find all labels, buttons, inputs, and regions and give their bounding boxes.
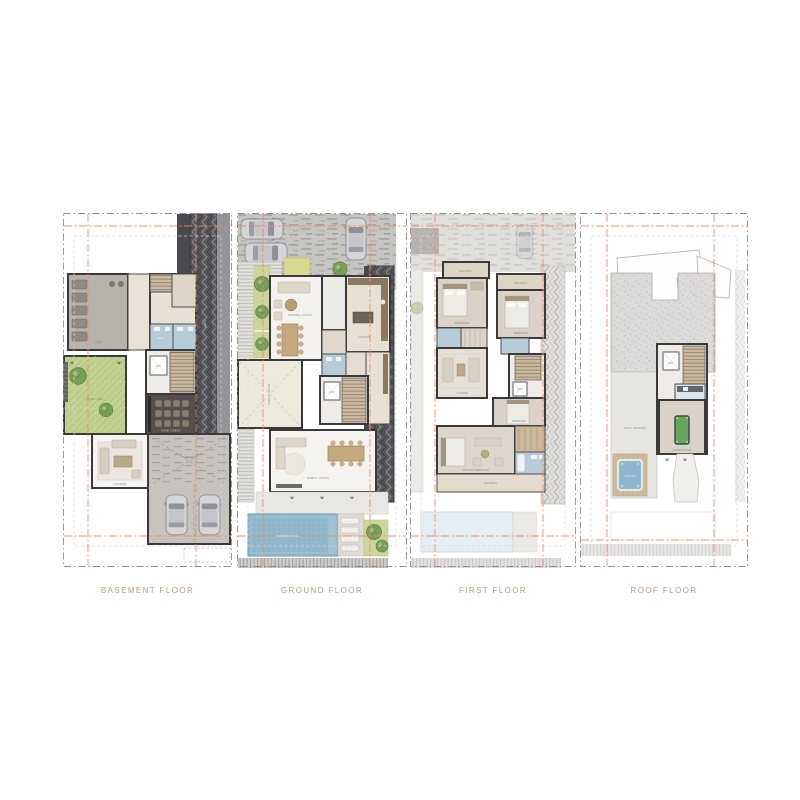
floor-panel-ground: FORMAL LIVING KITCHEN GUEST ROOM LIFT FA… <box>236 212 408 612</box>
ghost-outline <box>611 512 715 540</box>
first-floor-plan: BALCONY BALCONY BEDROOM BEDROOM LOUNGE L… <box>409 212 577 612</box>
lift-label: LIFT <box>668 362 674 365</box>
bedroom-2 <box>497 290 545 338</box>
car-icon <box>197 495 221 535</box>
balcony-label: BALCONY <box>460 270 473 273</box>
floor-panel-roof: LIFT GAMES ROOM ROOF TERRACE JACUZZI W W… <box>579 212 749 612</box>
floor-panel-first: BALCONY BALCONY BEDROOM BEDROOM LOUNGE L… <box>409 212 577 612</box>
car-icon <box>241 218 283 241</box>
master-bedroom-label: MASTER BEDROOM <box>463 469 489 472</box>
lift-label: LIFT <box>156 365 162 368</box>
games-room <box>659 400 705 454</box>
ramp-label: RAMP <box>203 320 206 328</box>
lift-label: LIFT <box>329 391 335 394</box>
kitchen <box>346 276 390 352</box>
balcony-label: BALCONY <box>485 482 498 485</box>
first-lift-core <box>509 354 545 398</box>
basement-gym <box>68 274 128 350</box>
car-icon <box>345 218 368 260</box>
basement-lounge <box>92 434 148 488</box>
floor-caption-ground: GROUND FLOOR <box>236 586 408 595</box>
cinema-label: HOME CINEMA <box>161 430 181 433</box>
formal-living-label: FORMAL LIVING <box>288 313 312 317</box>
parking-spot-outline <box>184 548 230 562</box>
ground-lift-core <box>320 376 368 424</box>
pool-deck <box>338 514 388 556</box>
formal-living <box>270 276 322 360</box>
bedroom-label: BEDROOM <box>514 332 528 335</box>
window-mark: W <box>665 458 669 462</box>
entrance-foyer <box>322 276 346 330</box>
bedroom-label: BEDROOM <box>512 420 526 423</box>
tree-icon <box>99 403 113 417</box>
bedroom-1 <box>437 278 487 328</box>
bath-label: BATH <box>158 337 165 340</box>
floor-caption-roof: ROOF FLOOR <box>579 586 749 595</box>
basement-corridor <box>128 274 150 350</box>
balcony-label: BALCONY <box>515 282 528 285</box>
lounge-label: LOUNGE <box>113 482 126 486</box>
bathroom-1 <box>437 328 461 348</box>
basement-cinema <box>146 394 196 434</box>
family-living-label: FAMILY LIVING <box>307 476 329 480</box>
floor-panel-basement: GYM BATH LIFT HOME CINEMA COURTYARD LOUN… <box>62 212 233 612</box>
basement-lift-core <box>146 350 196 394</box>
master-wardrobe <box>515 426 545 452</box>
master-bathroom <box>515 452 545 474</box>
walkin-closet-1 <box>461 328 487 348</box>
bedroom-label: BEDROOM <box>455 322 469 325</box>
tree-icon <box>70 368 87 385</box>
roof-floor-plan: LIFT GAMES ROOM ROOF TERRACE JACUZZI W W <box>579 212 749 612</box>
floor-caption-basement: BASEMENT FLOOR <box>62 586 233 595</box>
master-bedroom <box>437 426 515 474</box>
lift-label: LIFT <box>517 388 523 391</box>
games-room-label: GAMES ROOM <box>673 449 692 452</box>
gym-label: GYM <box>95 340 102 344</box>
car-icon <box>245 242 287 265</box>
basement-floor-plan: GYM BATH LIFT HOME CINEMA COURTYARD LOUN… <box>62 212 233 612</box>
floor-plans-board: GYM BATH LIFT HOME CINEMA COURTYARD LOUN… <box>0 0 800 800</box>
car-icon <box>164 495 188 535</box>
family-living <box>270 430 376 492</box>
bathroom-2 <box>501 338 529 354</box>
kitchen-label: KITCHEN <box>358 336 370 339</box>
guest-room-label: GUEST ROOM <box>267 383 271 405</box>
basement-courtyard <box>64 356 126 434</box>
lounge-label: LOUNGE <box>456 392 468 395</box>
first-lounge <box>437 348 487 398</box>
pool-label: SWIMMING POOL <box>277 535 300 538</box>
roof-terrace-label: ROOF TERRACE <box>624 427 646 430</box>
garage-label: GARAGE <box>182 455 195 459</box>
ground-floor-plan: FORMAL LIVING KITCHEN GUEST ROOM LIFT FA… <box>236 212 408 612</box>
ghost-car-icon <box>516 225 534 259</box>
floor-caption-first: FIRST FLOOR <box>409 586 577 595</box>
courtyard-label: COURTYARD <box>87 398 104 401</box>
basement-garage <box>148 434 230 544</box>
jacuzzi-label: JACUZZI <box>624 475 635 478</box>
ghost-ramp-edge <box>735 270 745 502</box>
